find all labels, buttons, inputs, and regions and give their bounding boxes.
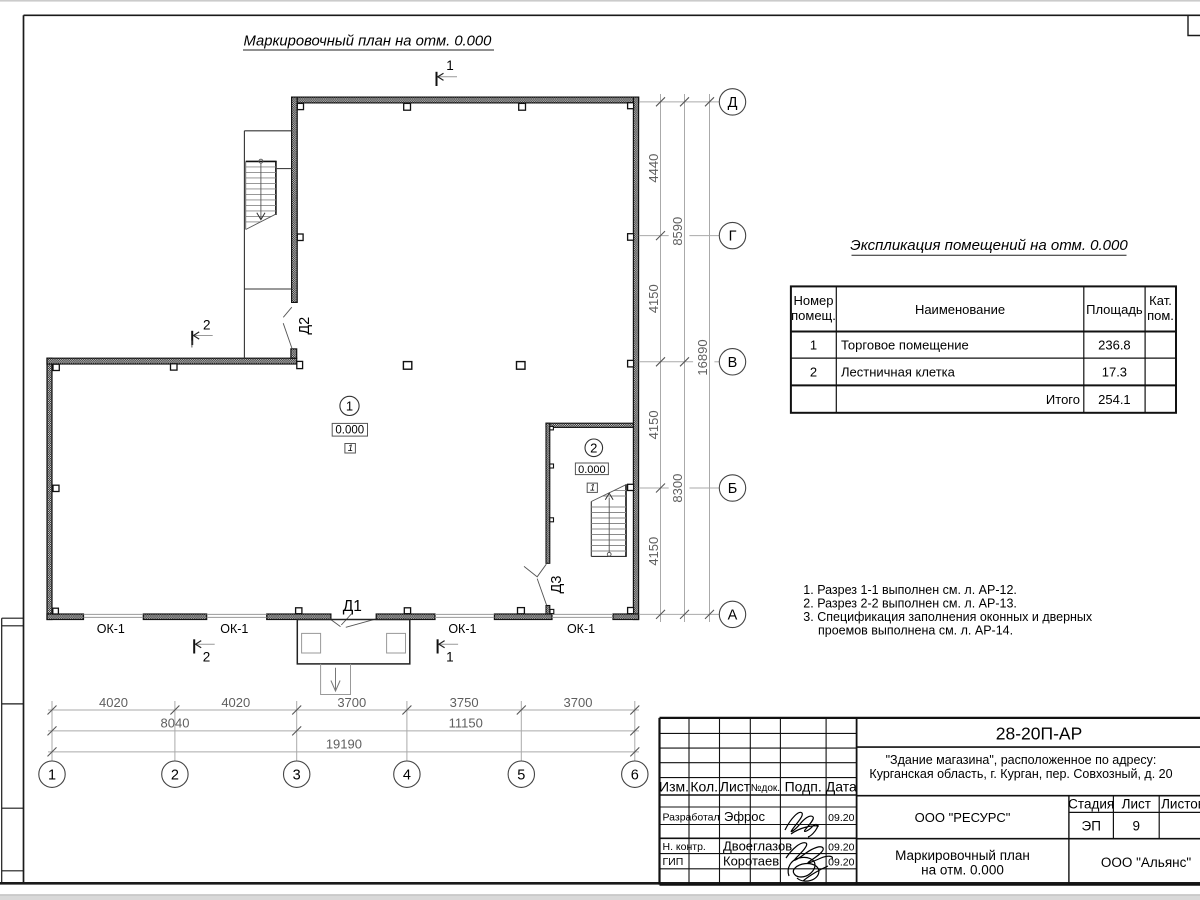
svg-text:Б: Б (728, 481, 738, 497)
svg-text:5: 5 (517, 767, 525, 783)
svg-text:Маркировочный план на отм. 0.0: Маркировочный план на отм. 0.000 (244, 34, 493, 50)
svg-text:9: 9 (1133, 818, 1141, 833)
svg-text:3700: 3700 (337, 695, 366, 710)
svg-text:Эфрос: Эфрос (724, 809, 765, 824)
svg-text:Дата: Дата (826, 779, 857, 795)
svg-text:Площадь: Площадь (1086, 302, 1143, 317)
svg-text:28-20П-АР: 28-20П-АР (996, 723, 1083, 743)
svg-text:"Здание магазина", расположенн: "Здание магазина", расположенное по адре… (886, 753, 1157, 767)
svg-text:проемов выполнена см. л. АР-14: проемов выполнена см. л. АР-14. (818, 624, 1013, 638)
svg-text:2: 2 (203, 317, 211, 332)
svg-text:19190: 19190 (326, 737, 362, 752)
svg-text:254.1: 254.1 (1098, 392, 1131, 407)
svg-text:Наименование: Наименование (915, 302, 1005, 317)
svg-text:11150: 11150 (449, 716, 483, 731)
svg-text:Курганская область, г. Курган,: Курганская область, г. Курган, пер. Совх… (869, 767, 1172, 781)
svg-text:09.20: 09.20 (828, 841, 854, 853)
svg-text:Кат.: Кат. (1149, 293, 1172, 308)
svg-text:4: 4 (403, 767, 411, 783)
svg-text:ООО "РЕСУРС": ООО "РЕСУРС" (915, 810, 1011, 825)
svg-text:Экспликация помещений на отм.: Экспликация помещений на отм. 0.000 (850, 237, 1128, 254)
svg-text:Д3: Д3 (549, 576, 565, 594)
svg-text:Торговое помещение: Торговое помещение (841, 338, 969, 353)
svg-text:Маркировочный план: Маркировочный план (895, 848, 1030, 863)
svg-text:2: 2 (171, 767, 179, 783)
svg-text:ООО "Альянс": ООО "Альянс" (1101, 855, 1191, 870)
svg-text:3750: 3750 (450, 695, 479, 710)
svg-text:1: 1 (346, 399, 353, 414)
svg-text:1: 1 (446, 650, 454, 665)
svg-text:4150: 4150 (646, 284, 661, 313)
svg-text:1: 1 (590, 483, 595, 493)
svg-text:на отм. 0.000: на отм. 0.000 (921, 863, 1004, 878)
svg-text:0.000: 0.000 (578, 464, 606, 476)
svg-text:4020: 4020 (99, 695, 128, 710)
svg-text:1. Разрез 1-1 выполнен см. л.: 1. Разрез 1-1 выполнен см. л. АР-12. (803, 583, 1017, 597)
svg-text:16890: 16890 (695, 339, 710, 375)
svg-text:09.20: 09.20 (828, 812, 854, 824)
svg-text:8040: 8040 (161, 716, 190, 731)
svg-text:1: 1 (446, 58, 454, 73)
svg-text:Лист: Лист (720, 779, 751, 795)
svg-text:Д1: Д1 (343, 598, 362, 615)
svg-text:ОК-1: ОК-1 (220, 622, 248, 636)
svg-text:8590: 8590 (670, 217, 685, 246)
svg-text:пом.: пом. (1147, 308, 1174, 323)
svg-text:А: А (728, 608, 738, 624)
svg-text:4150: 4150 (646, 537, 661, 566)
svg-text:Изм.: Изм. (659, 779, 689, 795)
svg-text:0.000: 0.000 (335, 425, 364, 437)
svg-text:ОК-1: ОК-1 (567, 622, 595, 636)
svg-text:3. Спецификация заполнения око: 3. Спецификация заполнения оконных и две… (803, 610, 1093, 624)
svg-text:помещ.: помещ. (791, 308, 836, 323)
svg-text:Лестничная клетка: Лестничная клетка (841, 365, 956, 380)
svg-text:4440: 4440 (646, 154, 661, 183)
svg-text:6: 6 (631, 767, 639, 783)
svg-text:В: В (728, 355, 738, 371)
svg-text:Номер: Номер (793, 293, 833, 308)
svg-text:Разработал: Разработал (663, 811, 720, 823)
svg-text:ГИП: ГИП (663, 856, 684, 868)
svg-text:Подп.: Подп. (785, 779, 822, 795)
svg-text:2: 2 (590, 440, 597, 455)
svg-text:Листов: Листов (1161, 797, 1200, 812)
svg-text:Лист: Лист (1122, 797, 1151, 812)
svg-text:3: 3 (293, 767, 301, 783)
svg-text:1: 1 (810, 338, 817, 353)
svg-text:2. Разрез 2-2 выполнен см. л.: 2. Разрез 2-2 выполнен см. л. АР-13. (803, 597, 1017, 611)
svg-text:Д2: Д2 (297, 317, 313, 335)
svg-text:2: 2 (810, 365, 817, 380)
svg-text:236.8: 236.8 (1098, 338, 1131, 353)
svg-text:17.3: 17.3 (1102, 365, 1127, 380)
svg-text:ЭП: ЭП (1081, 818, 1100, 833)
svg-text:Коротаев: Коротаев (723, 854, 779, 869)
svg-text:ОК-1: ОК-1 (448, 622, 476, 636)
svg-text:Стадия: Стадия (1068, 797, 1114, 812)
svg-text:№док.: №док. (751, 783, 780, 794)
svg-text:2: 2 (203, 650, 211, 665)
svg-text:1: 1 (348, 443, 353, 454)
svg-text:8300: 8300 (670, 474, 685, 503)
svg-text:Двоеглазов: Двоеглазов (723, 839, 792, 854)
svg-text:Г: Г (729, 229, 737, 245)
svg-text:4020: 4020 (221, 695, 250, 710)
svg-text:Н. контр.: Н. контр. (663, 841, 706, 853)
svg-text:Кол.: Кол. (690, 779, 718, 795)
svg-text:ОК-1: ОК-1 (97, 622, 125, 636)
svg-text:1: 1 (48, 767, 56, 783)
svg-text:Итого: Итого (1046, 392, 1080, 407)
svg-text:3700: 3700 (564, 695, 593, 710)
svg-text:4150: 4150 (646, 410, 661, 439)
svg-text:Д: Д (728, 95, 738, 111)
